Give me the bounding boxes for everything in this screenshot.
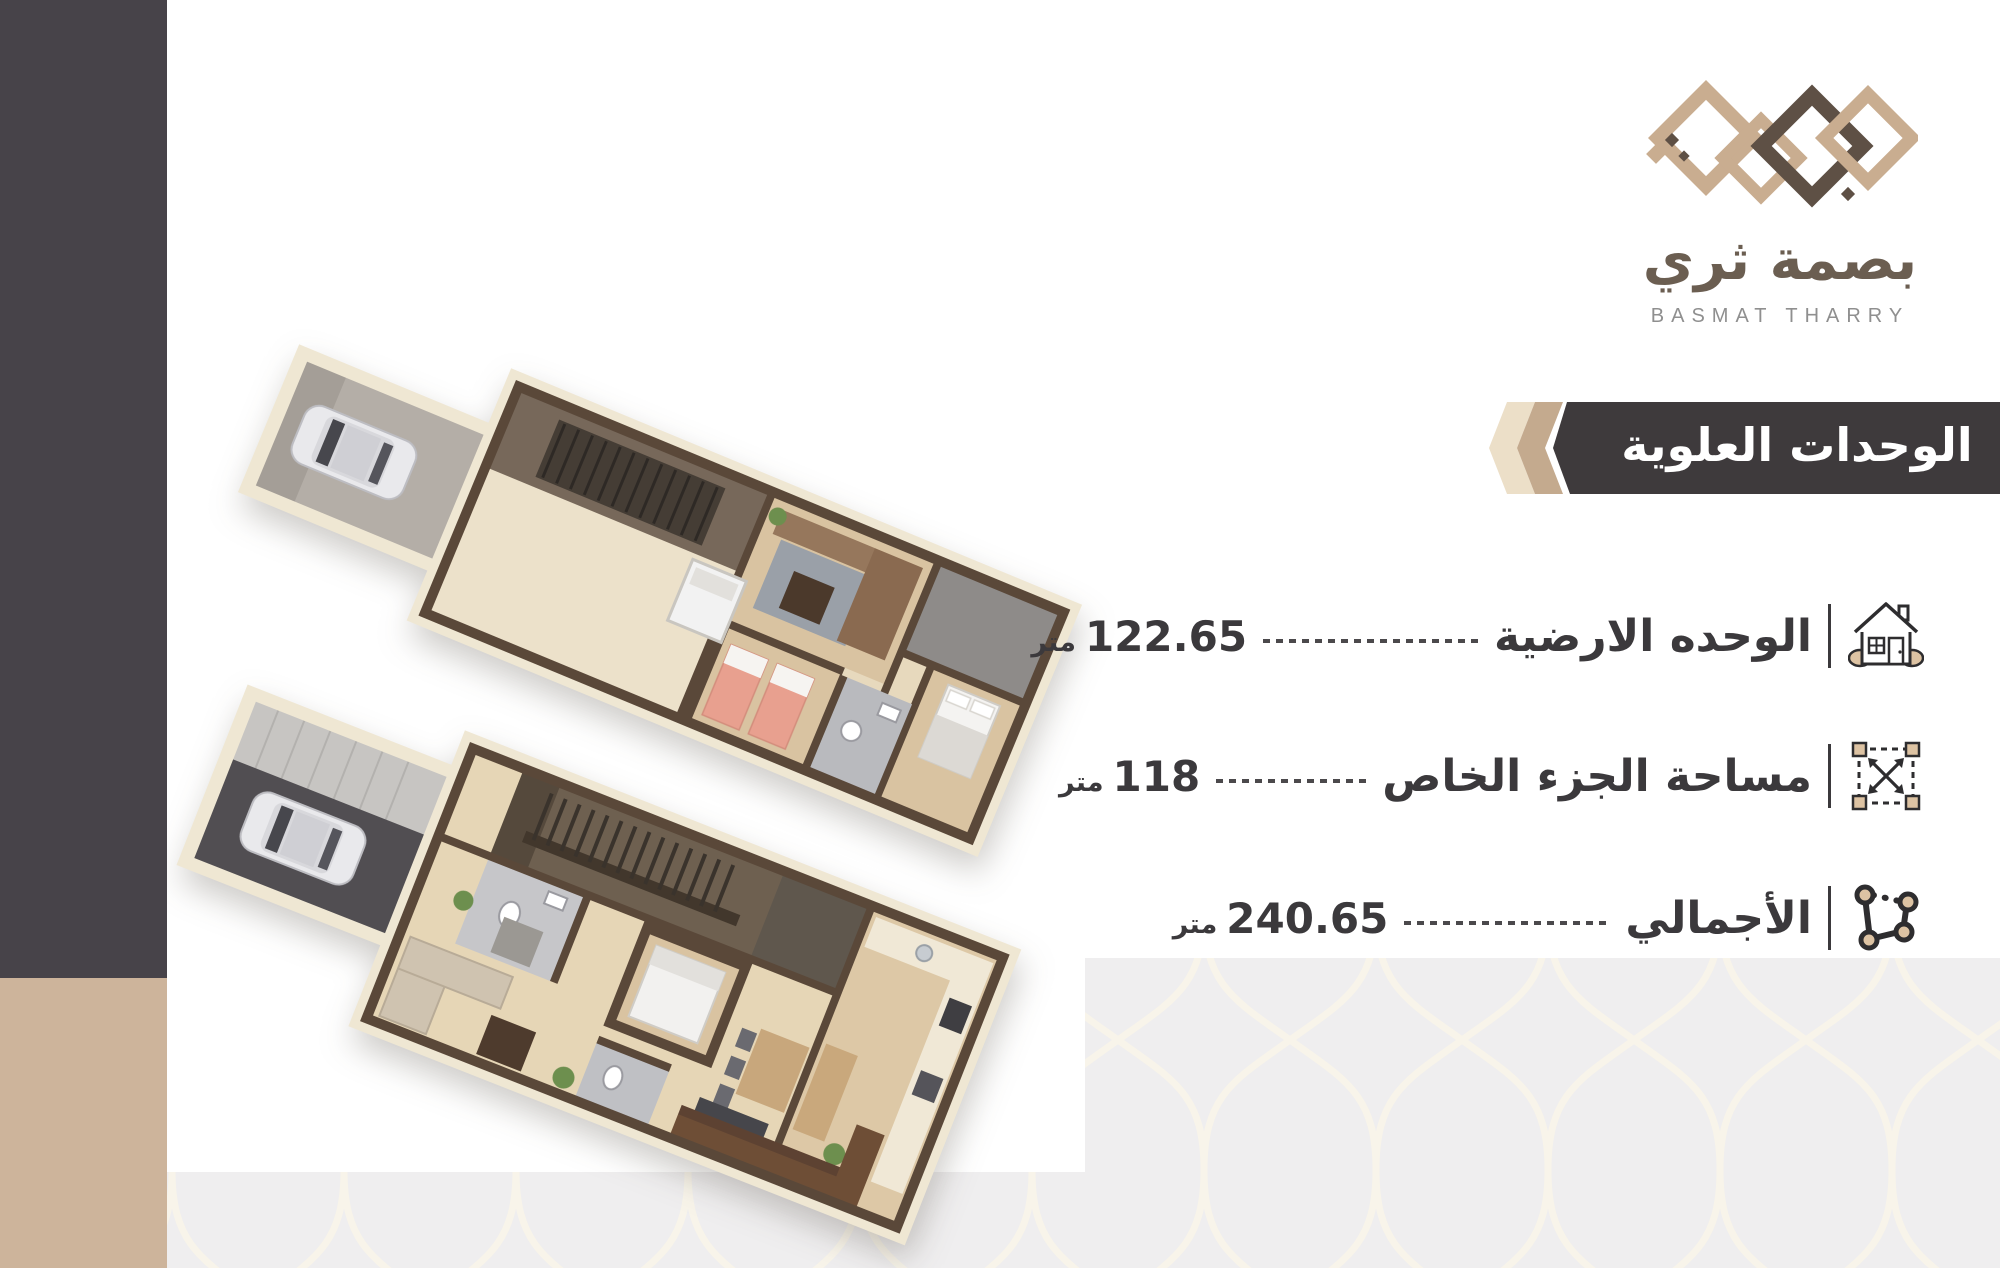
plot-polygon-icon xyxy=(1847,876,1925,960)
spec-unit: متر xyxy=(1173,909,1218,940)
section-banner-title: الوحدات العلوية xyxy=(1620,402,1974,488)
brand-name-latin: BASMAT THARRY xyxy=(1642,305,1918,328)
spec-unit: متر xyxy=(1059,767,1104,798)
brochure-page: بصمة ثري BASMAT THARRY الوحدات العلوية xyxy=(0,0,2000,1268)
dotted-leader xyxy=(1263,639,1478,643)
dotted-leader xyxy=(1404,921,1609,925)
spec-value: 122.65 متر xyxy=(1031,612,1247,661)
brand-name-arabic: بصمة ثري xyxy=(1642,228,1918,293)
spec-number: 118 xyxy=(1113,752,1201,801)
sidebar-beige-bar xyxy=(0,978,167,1268)
spec-value: 240.65 متر xyxy=(1173,894,1389,943)
spec-separator xyxy=(1828,604,1831,668)
dotted-leader xyxy=(1216,779,1366,783)
spec-separator xyxy=(1828,886,1831,950)
brand-logo-mark-icon xyxy=(1642,76,1918,226)
spec-label: مساحة الجزء الخاص xyxy=(1382,751,1812,802)
spec-separator xyxy=(1828,744,1831,808)
spec-row-private-area: مساحة الجزء الخاص 118 متر xyxy=(1059,734,1925,818)
area-dimensions-icon xyxy=(1847,734,1925,818)
sidebar-dark-bar xyxy=(0,0,167,978)
spec-value: 118 متر xyxy=(1059,752,1200,801)
house-icon xyxy=(1847,594,1925,678)
spec-row-ground-unit: الوحده الارضية 122.65 متر xyxy=(1031,594,1925,678)
spec-number: 240.65 xyxy=(1226,894,1388,943)
spec-label: الوحده الارضية xyxy=(1494,611,1812,662)
spec-unit: متر xyxy=(1031,627,1076,658)
spec-row-total: الأجمالي 240.65 متر xyxy=(1173,876,1925,960)
section-banner: الوحدات العلوية xyxy=(1470,402,2000,494)
brand-logo: بصمة ثري BASMAT THARRY xyxy=(1642,76,1918,328)
spec-number: 122.65 xyxy=(1085,612,1247,661)
spec-label: الأجمالي xyxy=(1625,893,1812,944)
